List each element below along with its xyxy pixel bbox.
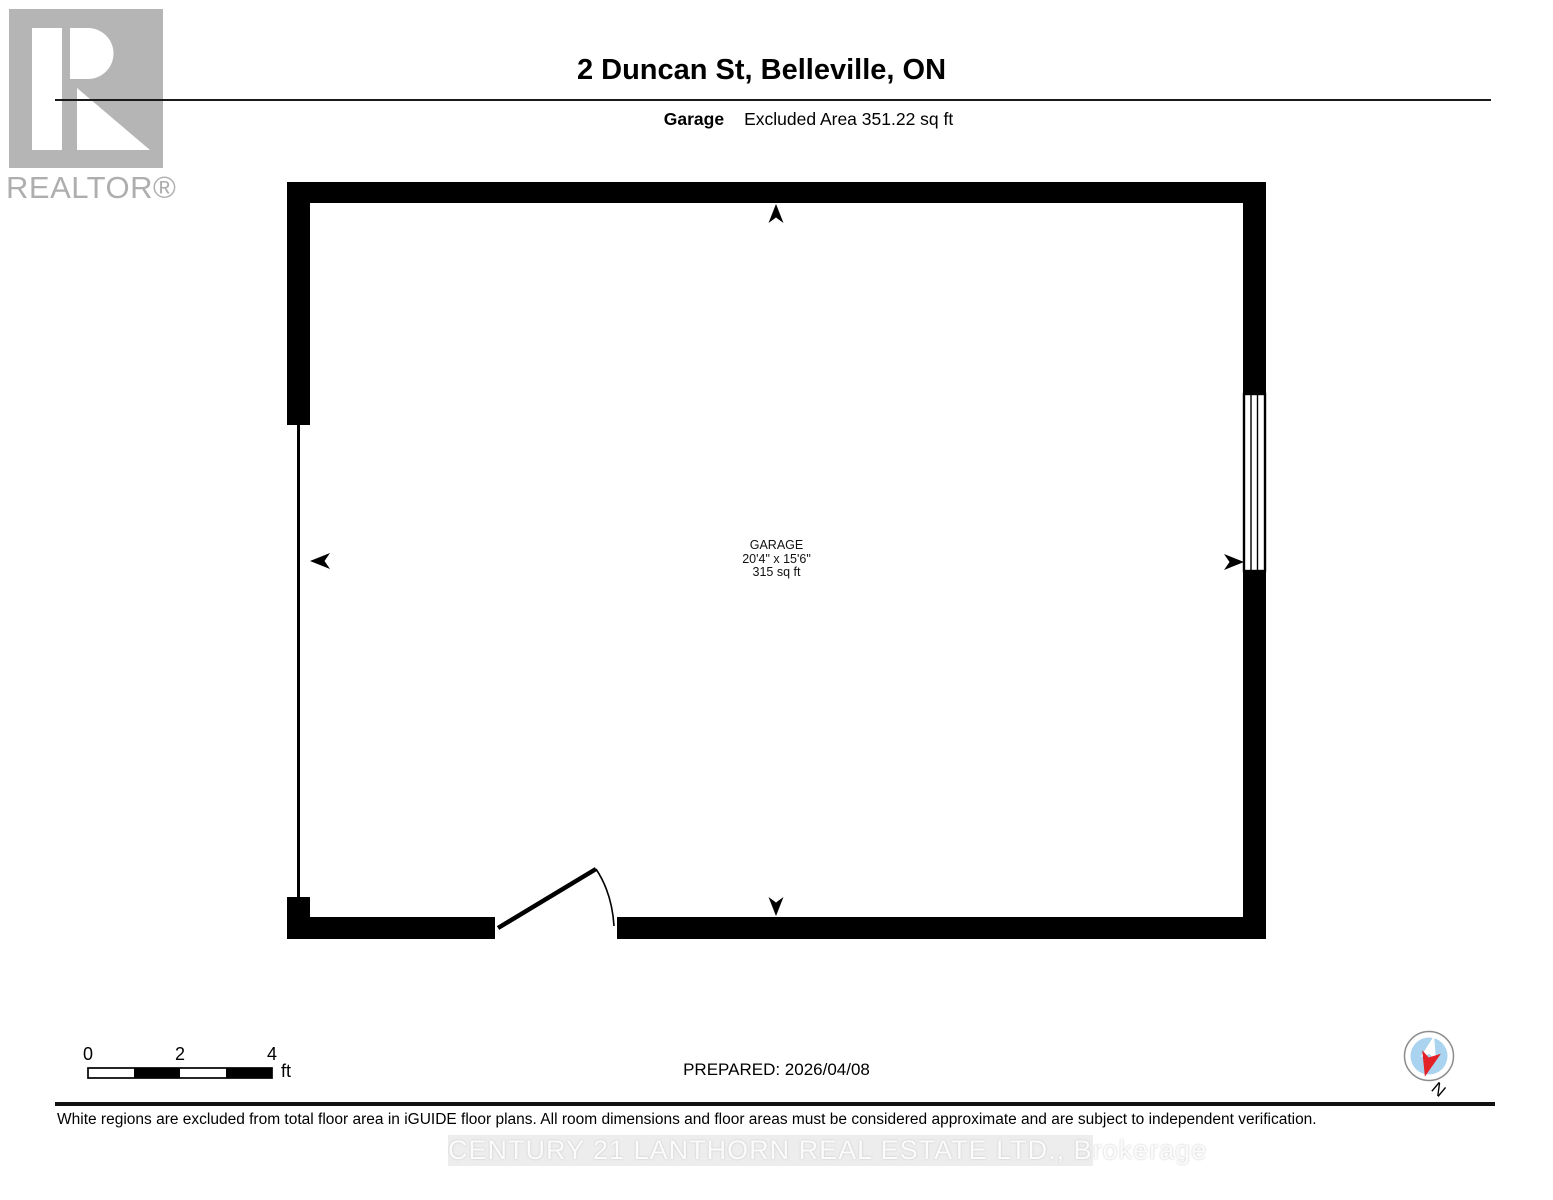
footer-divider (55, 1102, 1495, 1106)
brokerage-watermark: CENTURY 21 LANTHORN REAL ESTATE LTD., Br… (448, 1135, 1093, 1166)
wall-top (287, 182, 1266, 203)
floor-plan-drawing (0, 0, 1553, 1200)
room-label: GARAGE 20'4" x 15'6" 315 sq ft (0, 539, 1553, 580)
wall-left-upper (287, 182, 310, 425)
wall-right-lower (1243, 571, 1266, 939)
wall-bottom-left (287, 917, 495, 939)
wall-left-thin (297, 425, 300, 898)
door-swing-arc (596, 869, 614, 926)
arrow-down-icon (769, 897, 784, 916)
prepared-date: PREPARED: 2026/04/08 (0, 1060, 1553, 1080)
room-dimensions: 20'4" x 15'6" (0, 553, 1553, 567)
wall-bottom-right (617, 917, 1266, 939)
floorplan-page: REALTOR® 2 Duncan St, Belleville, ON Gar… (0, 0, 1553, 1200)
disclaimer-text: White regions are excluded from total fl… (57, 1111, 1533, 1129)
room-area: 315 sq ft (0, 566, 1553, 580)
door-leaf (498, 869, 596, 928)
arrow-up-icon (769, 204, 784, 223)
room-name: GARAGE (0, 539, 1553, 553)
wall-right-upper (1243, 182, 1266, 394)
